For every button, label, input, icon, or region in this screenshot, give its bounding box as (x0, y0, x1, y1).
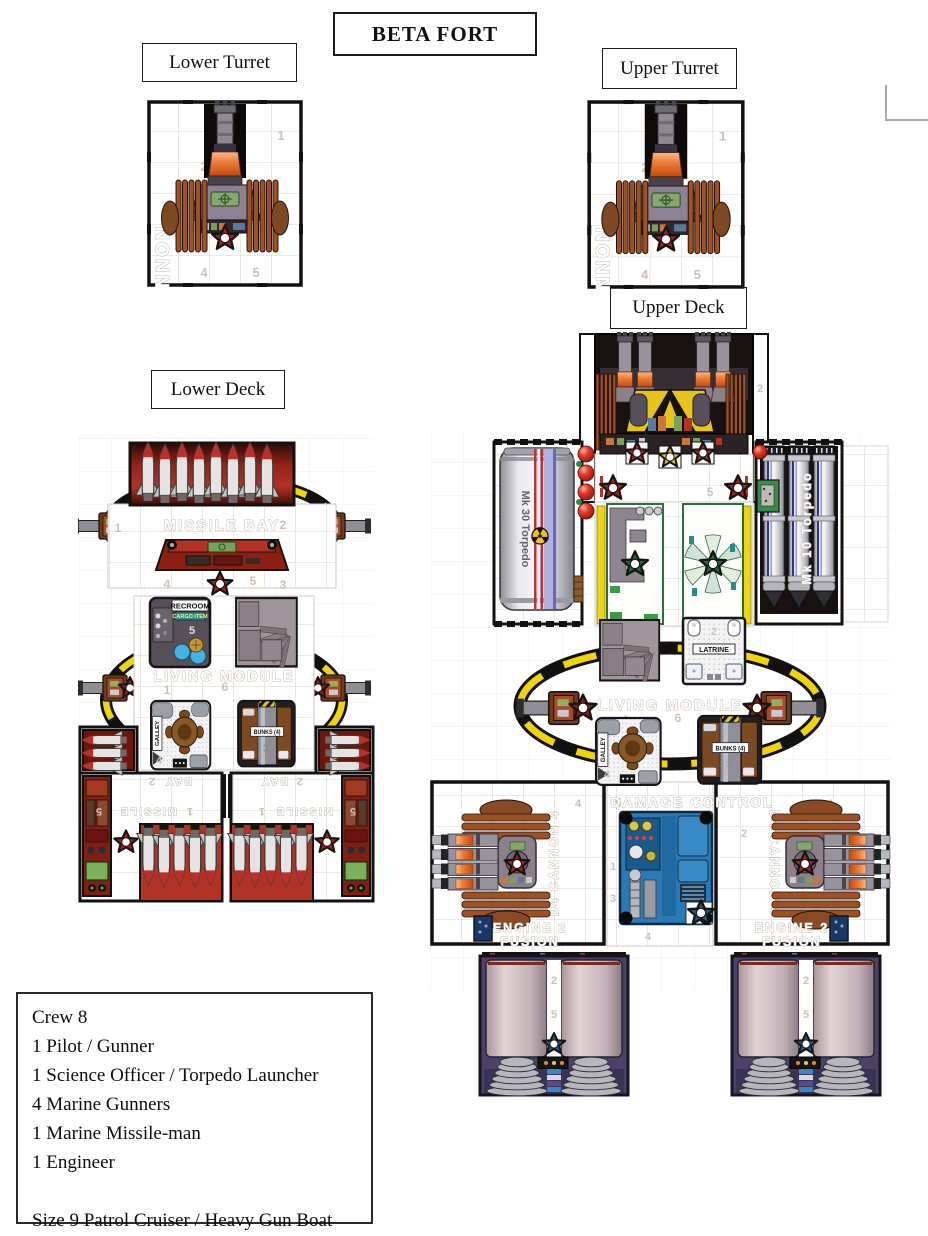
cell-number: 4 (575, 798, 582, 810)
cell-number: 4 (200, 265, 208, 280)
torpedo-warhead-icon (578, 503, 594, 519)
cannon-wing-left: D4 CANNON 4 4 (432, 782, 604, 944)
torpedo-tubes (763, 446, 835, 608)
crew-line: 1 Pilot / Gunner (32, 1032, 365, 1061)
cell-number: 1 (164, 683, 171, 697)
latrine-room: 2 LATRINE (683, 618, 745, 684)
latrine-label: LATRINE (699, 647, 729, 654)
mk30-torpedo-bay: Mk 30 Torpedo (494, 442, 594, 624)
cell-number: 5 (350, 805, 356, 817)
page-corner-mark (885, 85, 928, 121)
cell-number: 2 (280, 518, 287, 532)
crew-line-blank (32, 1177, 365, 1206)
fusion-engine-left (480, 952, 628, 1096)
recroom: RECROOM CARGO ITEM 5 (150, 598, 210, 667)
cell-number: 4 (164, 577, 171, 591)
machinery-room (600, 620, 659, 682)
cell-number: 1 (719, 128, 726, 143)
torpedo-warhead-icon (578, 484, 594, 500)
cell-number: 4 (641, 267, 649, 282)
lower-turret-label: Lower Turret (142, 43, 297, 82)
cell-number: 5 (707, 485, 714, 499)
torpedo-warhead-icon (753, 445, 767, 459)
crew-line: 1 Marine Missile-man (32, 1119, 365, 1148)
cell-number: 3 (280, 578, 287, 592)
engine-name: FUSION (762, 935, 821, 949)
machinery-room (236, 598, 297, 668)
upper-deck-bridge-row: 5 (595, 434, 753, 502)
cell-number: 1 (277, 128, 284, 143)
lower-deck-plan: MISSILE BAY 1 2 4 5 3 RECROOM (78, 438, 375, 903)
crew-line: Size 9 Patrol Cruiser / Heavy Gun Boat (32, 1206, 365, 1235)
bunks-room (238, 701, 295, 766)
upper-turret-tile: CANNON 1 2 3 4 5 (586, 100, 746, 289)
cell-number: 5 (694, 267, 701, 282)
cell-number: 4 (604, 769, 611, 781)
bay-name: MISSILE (275, 805, 333, 817)
living-module-name: LIVING MODULE (597, 697, 742, 714)
cell-number: 6 (675, 711, 682, 725)
mk10-torpedo-label: Mk 10 Torpedo (800, 471, 814, 584)
cell-number: 1 (259, 805, 265, 817)
bay-name: MISSILE (119, 805, 177, 817)
cell-number: 3 (263, 743, 269, 755)
bay-name: BAY (260, 775, 288, 787)
cell-number: 3 (727, 759, 733, 771)
damage-control-name: DAMAGE CONTROL (610, 794, 773, 810)
crew-line: Crew 8 (32, 1003, 365, 1032)
cell-number: 1 (187, 805, 193, 817)
mk30-torpedo-label: Mk 30 Torpedo (519, 491, 531, 568)
bay-name: BAY (164, 775, 192, 787)
cargo-item-label: CARGO ITEM (172, 614, 208, 620)
cell-number: 5 (252, 265, 259, 280)
mk10-torpedo-bay: Mk 10 Torpedo (753, 442, 888, 624)
cell-number: 5 (96, 805, 102, 817)
crew-line: 1 Engineer (32, 1148, 365, 1177)
cell-number: 6 (222, 680, 229, 694)
cell-number: 5 (250, 574, 257, 588)
bunks-room (698, 716, 761, 784)
upper-turret-label: Upper Turret (602, 48, 737, 89)
engine-name: ENGINE 2 (755, 921, 829, 935)
cell-number: 2 (149, 775, 155, 787)
torpedo-warhead-icon (578, 465, 594, 481)
cell-number: 1 (115, 521, 122, 535)
recroom-label: RECROOM (170, 602, 209, 611)
science-deck-rooms (595, 502, 753, 626)
crew-info-box: Crew 8 1 Pilot / Gunner 1 Science Office… (16, 992, 373, 1224)
cell-number: 2 (741, 828, 747, 840)
cell-number: 4 (645, 931, 652, 943)
cell-number: 4 (156, 755, 163, 767)
upper-deck-label: Upper Deck (610, 287, 747, 329)
beta-fort-sheet: GALLEY BUNKS (4) (0, 0, 928, 1236)
page-title: BETA FORT (333, 12, 537, 56)
crew-line: 4 Marine Gunners (32, 1090, 365, 1119)
engine-name: FUSION (500, 935, 559, 949)
missile-bay-name: MISSILE BAY (164, 517, 280, 534)
upper-deck-plan: 2 (430, 330, 892, 1100)
cell-number: 3 (610, 893, 616, 905)
lower-turret-tile: CANNON 1 2 3 4 5 (147, 100, 303, 287)
fusion-engine-right (732, 952, 880, 1096)
lower-deck-label: Lower Deck (151, 370, 285, 409)
cell-number: 5 (189, 625, 195, 637)
crew-line: 1 Science Officer / Torpedo Launcher (32, 1061, 365, 1090)
engine-name: ENGINE 2 (493, 921, 567, 935)
cell-number: 2 (757, 383, 763, 395)
cell-number: 2 (297, 775, 303, 787)
torpedo-warhead-icon (578, 446, 594, 462)
cell-number: 2 (711, 626, 717, 638)
cell-number: 1 (610, 861, 616, 873)
